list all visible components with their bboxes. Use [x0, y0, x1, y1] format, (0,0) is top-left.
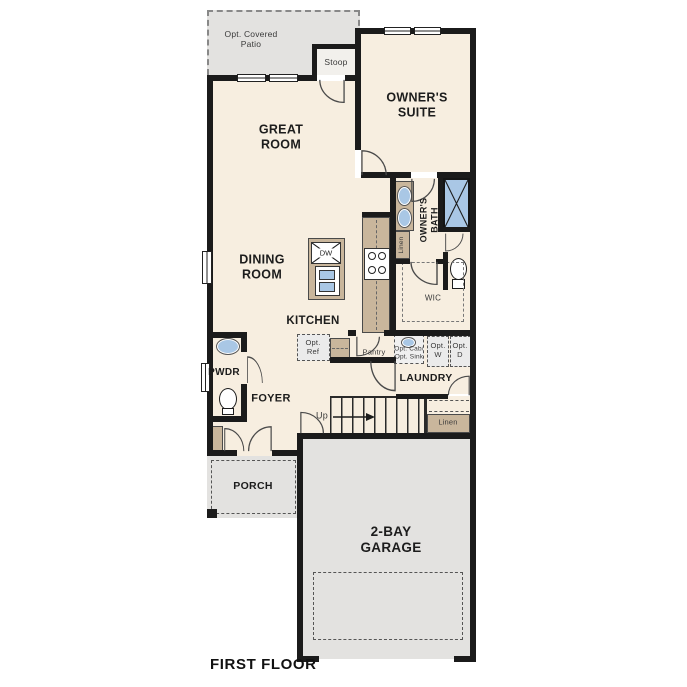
floor-plan: DW	[0, 0, 687, 687]
door-arc	[246, 424, 272, 452]
garage-label: 2-BAY GARAGE	[360, 524, 421, 556]
wall	[241, 332, 247, 352]
pwdr-label: PWDR	[208, 367, 240, 379]
sink-basin	[319, 282, 335, 292]
burner	[378, 252, 386, 260]
dishwasher: DW	[311, 242, 341, 264]
pwdr-sink	[217, 339, 239, 354]
wall	[470, 28, 476, 662]
porch-label: PORCH	[233, 480, 272, 492]
vanity-sink	[398, 187, 411, 205]
wall	[390, 172, 396, 336]
dishwasher-label: DW	[318, 249, 335, 258]
porch-column	[207, 509, 217, 518]
wall	[207, 416, 247, 422]
door-arc	[368, 360, 396, 394]
counter-dashline	[332, 348, 348, 349]
wall	[297, 433, 303, 662]
window	[269, 74, 298, 82]
door-arc	[408, 261, 438, 287]
shower-x-icon	[445, 180, 468, 227]
burner	[368, 252, 376, 260]
up-arrow	[333, 412, 375, 422]
linen-shelf-dashline	[429, 400, 469, 412]
wall	[348, 330, 356, 336]
wall	[454, 656, 476, 662]
door-arc	[445, 233, 465, 253]
door-arc	[247, 354, 264, 384]
burner	[368, 266, 376, 274]
door-arc	[224, 426, 246, 452]
wall	[443, 252, 448, 290]
opt-cab-sink-label: Opt. Cab/ Opt. Sink	[394, 345, 424, 360]
foyer-counter	[330, 338, 350, 358]
sink-basin	[319, 270, 335, 280]
opt-washer-label: Opt. W	[431, 342, 446, 360]
foyer-label: FOYER	[251, 393, 290, 406]
great-room-label: GREAT ROOM	[259, 122, 303, 152]
window	[414, 27, 441, 35]
dining-room-label: DINING ROOM	[239, 252, 285, 282]
opt-ref-label: Opt. Ref	[306, 339, 321, 357]
window	[237, 74, 266, 82]
owners-bath-label: OWNER'S BATH	[418, 198, 439, 243]
wall	[438, 227, 475, 232]
patio-label: Opt. Covered Patio	[225, 29, 278, 49]
pwdr-toilet	[219, 388, 237, 410]
pantry-label: Pantry	[363, 349, 386, 358]
window	[384, 27, 411, 35]
hall-linen-label: Linen	[438, 419, 457, 428]
garage-door-dashed-area	[313, 572, 463, 640]
door-arc	[317, 79, 345, 105]
shower	[443, 178, 470, 229]
wall	[390, 259, 410, 264]
door-arc	[361, 148, 389, 176]
opt-dryer-label: Opt. D	[453, 342, 468, 360]
first-floor-title: FIRST FLOOR	[210, 656, 317, 673]
bath-linen-label: Linen	[398, 237, 406, 254]
wic-label: WIC	[425, 293, 441, 302]
wall	[355, 28, 361, 150]
window	[202, 251, 212, 284]
laundry-label: LAUNDRY	[399, 372, 452, 384]
wall	[396, 394, 448, 399]
up-label: Up	[316, 411, 328, 422]
wall	[384, 330, 476, 336]
island-sink	[315, 266, 340, 296]
range	[364, 248, 390, 280]
stoop-label: Stoop	[324, 57, 347, 67]
kitchen-label: KITCHEN	[286, 315, 339, 329]
vanity-sink	[398, 209, 411, 227]
pwdr-toilet-base	[222, 408, 234, 415]
wall	[362, 212, 390, 217]
owners-suite-label: OWNER'S SUITE	[386, 90, 447, 120]
foyer-closet	[212, 426, 223, 452]
burner	[378, 266, 386, 274]
